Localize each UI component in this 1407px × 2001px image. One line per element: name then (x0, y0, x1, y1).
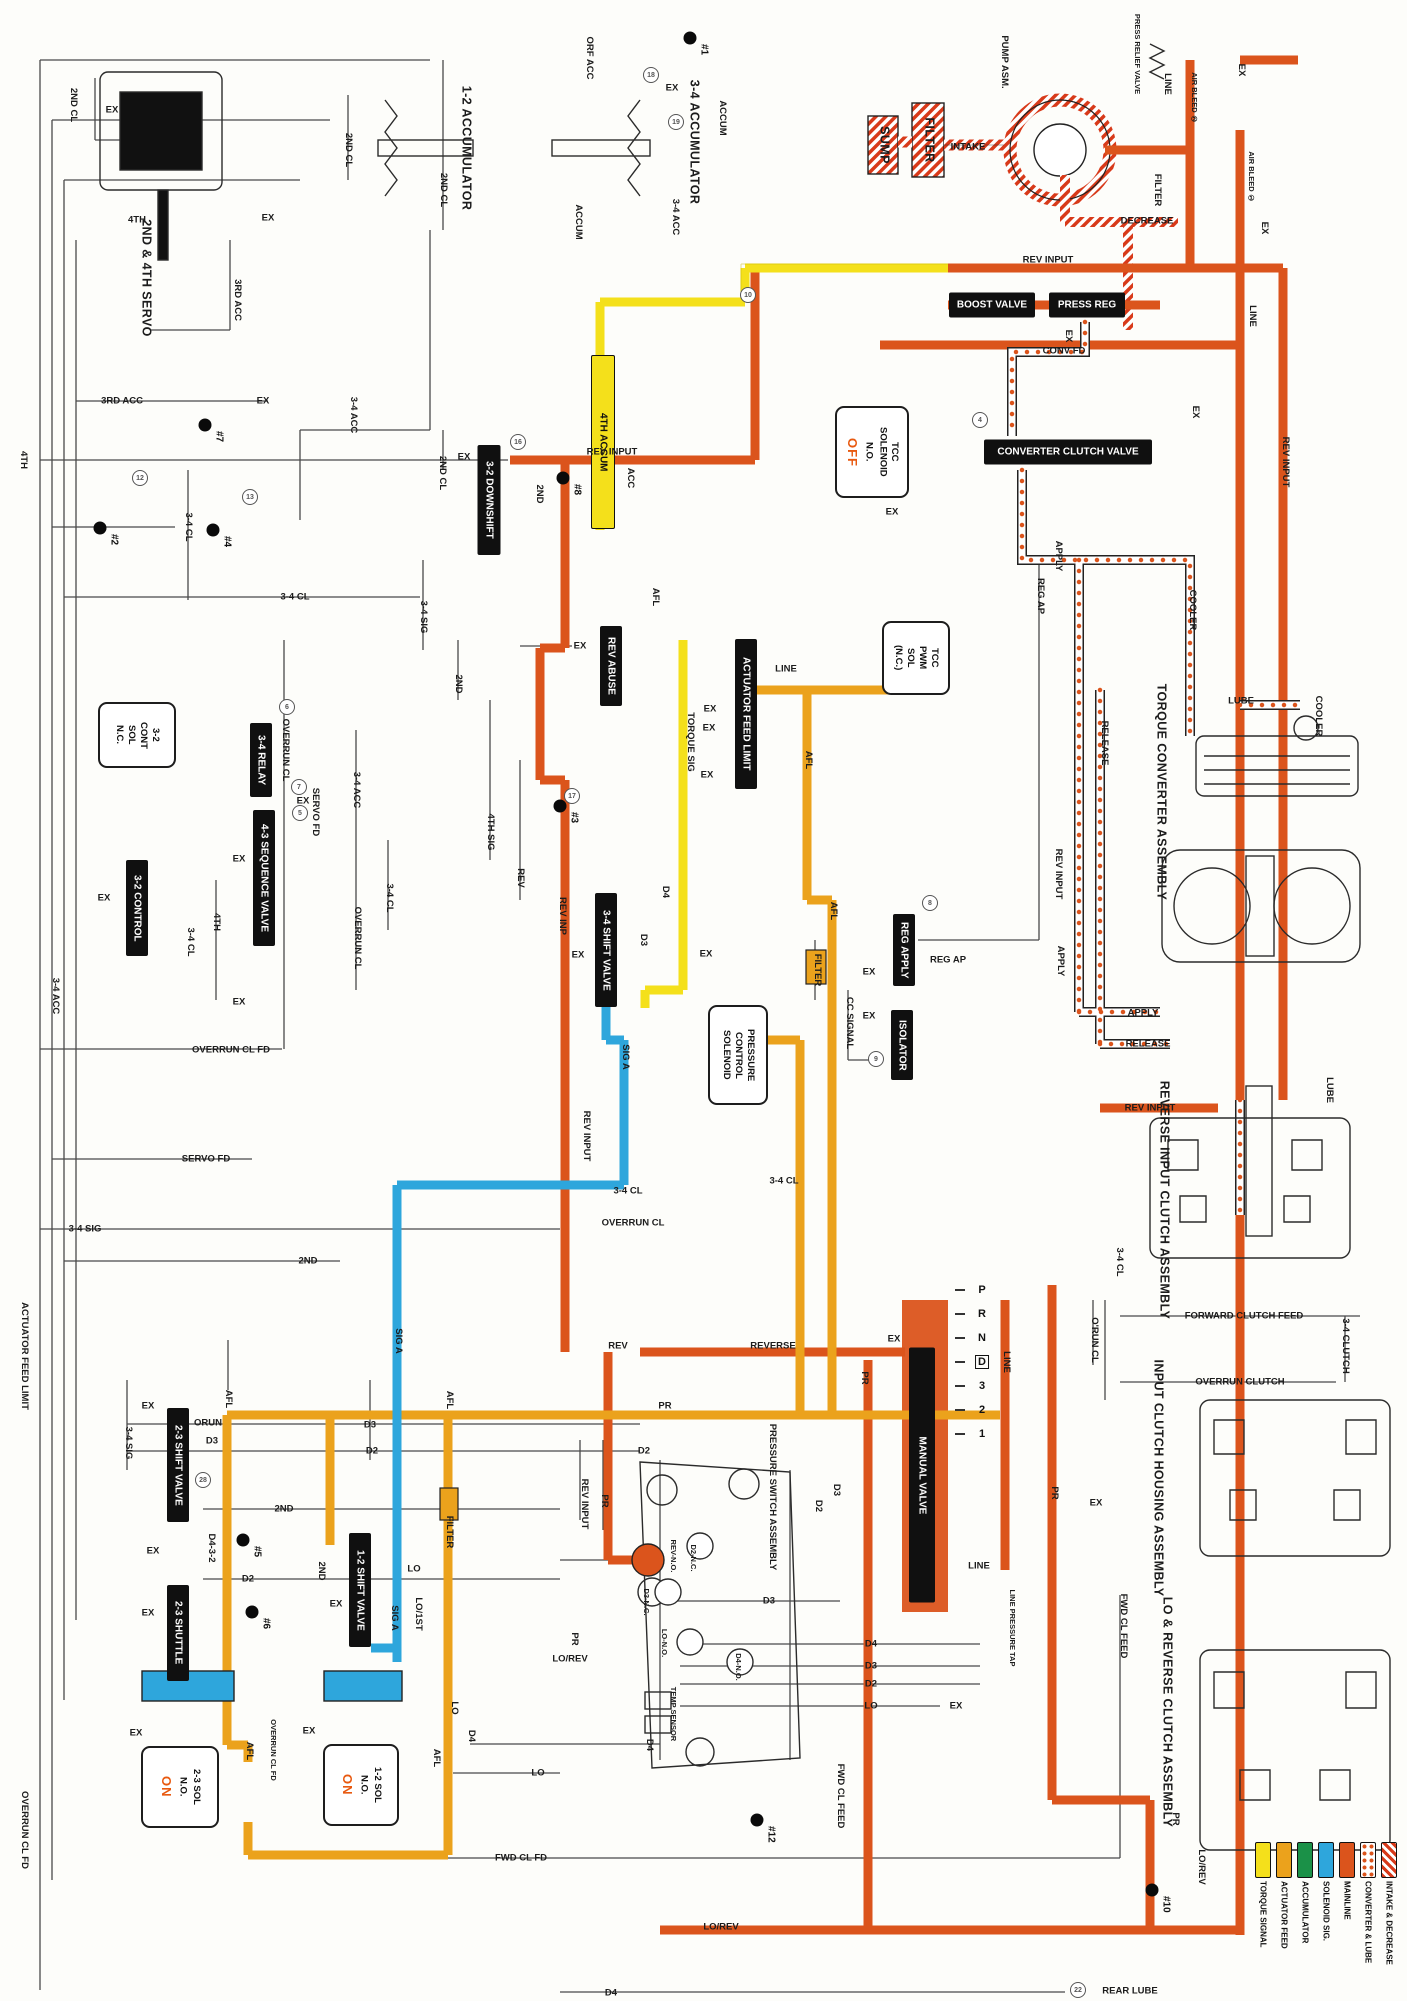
legend-label: CONVERTER & LUBE (1364, 1881, 1373, 1963)
diagram-label: REV INPUT (1280, 437, 1290, 488)
checkball-icon (684, 32, 697, 45)
diagram-label: PRESS RELIEF VALVE (1133, 14, 1141, 94)
circled-ref: 22 (1070, 1982, 1086, 1998)
diagram-label: PR (569, 1632, 579, 1645)
diagram-label: REV INPUT (587, 447, 638, 457)
valve-boost-valve: BOOST VALVE (949, 293, 1035, 318)
diagram-label: LINE (775, 664, 797, 674)
diagram-label: LINE (1247, 305, 1257, 327)
diagram-label: 3-4 SIG (123, 1427, 133, 1460)
diagram-label: REV-N.O. (669, 1540, 677, 1573)
circled-ref: 13 (242, 489, 258, 505)
diagram-label: ACC (625, 468, 635, 489)
legend-swatch-icon (1255, 1842, 1271, 1878)
diagram-label: APPLY (1055, 946, 1065, 977)
diagram-label: REV (515, 868, 525, 888)
diagram-label: REVERSE (750, 1341, 795, 1351)
gear-tick (955, 1313, 965, 1315)
diagram-label: 3-4 SIG (418, 601, 428, 634)
diagram-label: EX (330, 1599, 343, 1609)
diagram-label: D3 (865, 1661, 877, 1671)
valve-3-2-downshift: 3-2 DOWNSHIFT (478, 445, 501, 555)
solenoid-label: 3-2 CONT SOL N.C. (113, 722, 161, 749)
diagram-label: EX (1063, 330, 1073, 343)
diagram-label: COOLER (1313, 696, 1323, 737)
gear-tick (955, 1433, 965, 1435)
valve-label: 2-3 SHUTTLE (173, 1601, 184, 1664)
diagram-label: LO/REV (703, 1922, 738, 1932)
diagram-label: EX (888, 1334, 901, 1344)
circled-ref: 6 (279, 699, 295, 715)
checkball-label: #2 (109, 534, 120, 545)
diagram-label: EX (703, 723, 716, 733)
valve-label: 1-2 SHIFT VALVE (355, 1550, 366, 1631)
diagram-label: SIG A (389, 1605, 399, 1631)
diagram-label: 3RD ACC (232, 279, 242, 321)
valve-label: 4TH ACCUM (598, 413, 609, 472)
diagram-label: FWD CL FEED (835, 1764, 845, 1829)
diagram-label: INTAKE (951, 142, 986, 152)
mainline-circuit (510, 60, 1298, 1935)
diagram-label: 2ND CL (343, 133, 353, 167)
legend: TORQUE SIGNALACTUATOR FEEDACCUMULATORSOL… (1256, 1842, 1396, 1965)
diagram-label: ACTUATOR FEED LIMIT (19, 1302, 29, 1410)
diagram-label: AFL (828, 902, 838, 920)
diagram-label: SIG A (620, 1044, 630, 1070)
diagram-label: TORQUE CONVERTER ASSEMBLY (1155, 684, 1168, 901)
solenoid-state: ON (340, 1774, 355, 1796)
diagram-label: EX (106, 105, 119, 115)
checkball-icon (246, 1606, 259, 1619)
diagram-label: OVERRUN CL (602, 1218, 665, 1228)
valve-4th-accum: 4TH ACCUM (591, 355, 615, 529)
valve-4-3-sequence-valve: 4-3 SEQUENCE VALVE (253, 810, 275, 946)
checkball-label: #5 (252, 1546, 263, 1557)
valve-label: 4-3 SEQUENCE VALVE (259, 824, 270, 932)
diagram-label: 3-4 ACC (351, 772, 361, 809)
gear-tick (955, 1337, 965, 1339)
diagram-label: 3-4 ACCUMULATOR (688, 80, 701, 205)
diagram-label: AFL (803, 751, 813, 769)
legend-label: MAINLINE (1343, 1881, 1352, 1920)
valve-isolator: ISOLATOR (891, 1010, 913, 1080)
gear-position-D: D (975, 1355, 989, 1369)
checkball-icon (557, 472, 570, 485)
diagram-label: LO (449, 1701, 459, 1714)
diagram-label: AIR BLEED ① (1247, 151, 1255, 203)
valve-converter-clutch-valve: CONVERTER CLUTCH VALVE (984, 440, 1152, 465)
diagram-label: D3 (364, 1420, 376, 1430)
diagram-label: AFL (444, 1391, 454, 1409)
solenoid-5: 1-2 SOL N.O. ON (323, 1744, 399, 1826)
valve-label: 2-3 SHIFT VALVE (173, 1425, 184, 1506)
legend-label: ACTUATOR FEED (1280, 1881, 1289, 1949)
diagram-label: EX (701, 770, 714, 780)
diagram-label: LINE (1001, 1351, 1011, 1373)
diagram-label: 3-4 CL (185, 927, 195, 956)
diagram-label: 4TH SIG (485, 814, 495, 851)
diagram-label: 3-4 CL (183, 512, 193, 541)
diagram-label: D2 (366, 1446, 378, 1456)
diagram-label: EX (704, 704, 717, 714)
circled-ref: 28 (195, 1472, 211, 1488)
diagram-label: APPLY (1128, 1008, 1159, 1018)
diagram-label: AIR BLEED ② (1190, 72, 1198, 124)
gear-position-P: P (978, 1284, 985, 1296)
diagram-label: LINE (1162, 73, 1172, 95)
diagram-label: 3-4 CL (384, 883, 394, 912)
diagram-label: FILTER (444, 1516, 454, 1549)
diagram-label: PR (599, 1494, 609, 1507)
diagram-label: OVERRUN CL (352, 907, 362, 970)
checkball-label: #10 (1161, 1896, 1172, 1913)
diagram-label: EX (1259, 222, 1269, 235)
diagram-label: CC SIGNAL (844, 997, 854, 1049)
diagram-label: REV INPUT (581, 1111, 591, 1162)
diagram-label: EX (130, 1728, 143, 1738)
diagram-label: 3-4 SIG (69, 1224, 102, 1234)
diagram-label: EX (142, 1401, 155, 1411)
diagram-label: LUBE (1228, 696, 1254, 706)
diagram-label: 2ND (298, 1256, 317, 1266)
diagram-label: LO-N.O. (660, 1629, 668, 1657)
checkball-icon (237, 1534, 250, 1547)
circled-ref: 18 (643, 67, 659, 83)
solenoid-3: PRESSURE CONTROL SOLENOID (708, 1005, 768, 1105)
valve-label: MANUAL VALVE (917, 1436, 928, 1514)
valve-1-2-shift-valve: 1-2 SHIFT VALVE (349, 1533, 371, 1647)
diagram-label: REV INPUT (579, 1479, 589, 1530)
diagram-label: TORQUE SIG (685, 712, 695, 771)
checkball-icon (94, 522, 107, 535)
circled-ref: 9 (868, 1051, 884, 1067)
diagram-label: EX (147, 1546, 160, 1556)
legend-label: SOLENOID SIG. (1322, 1881, 1331, 1941)
diagram-label: OVERRUN CLUTCH (1195, 1377, 1284, 1387)
diagram-label: EX (262, 213, 275, 223)
diagram-label: EX (233, 997, 246, 1007)
diagram-label: 2ND (534, 484, 544, 503)
valve-label: 3-4 RELAY (256, 735, 267, 785)
legend-item: INTAKE & DECREASE (1382, 1842, 1396, 1965)
gear-tick (955, 1409, 965, 1411)
circled-ref: 8 (922, 895, 938, 911)
diagram-label: D3 (763, 1596, 775, 1606)
diagram-label: D2 (813, 1500, 823, 1512)
diagram-label: PR (859, 1371, 869, 1384)
diagram-label: 4TH (211, 913, 221, 931)
gear-tick (955, 1361, 965, 1363)
legend-swatch-icon (1276, 1842, 1292, 1878)
diagram-label: D3 (206, 1436, 218, 1446)
diagram-label: D3 (638, 934, 648, 946)
checkball-label: #7 (214, 431, 225, 442)
legend-item: SOLENOID SIG. (1319, 1842, 1333, 1965)
diagram-label: LO/REV (1196, 1849, 1206, 1884)
diagram-label: EX (1090, 1498, 1103, 1508)
checkball-icon (199, 419, 212, 432)
legend-item: TORQUE SIGNAL (1256, 1842, 1270, 1965)
diagram-label: PRESSURE SWITCH ASSEMBLY (767, 1424, 777, 1571)
diagram-label: 2ND (453, 674, 463, 693)
legend-swatch-icon (1297, 1842, 1313, 1878)
diagram-label: ORUN (194, 1418, 222, 1428)
diagram-label: SIG A (393, 1328, 403, 1354)
valve-manual-valve: MANUAL VALVE (909, 1348, 935, 1603)
diagram-label: D2 (242, 1574, 254, 1584)
gear-position-2: 2 (979, 1404, 985, 1416)
diagram-label: REV (608, 1341, 628, 1351)
checkball-icon (1146, 1884, 1159, 1897)
diagram-label: D4 (644, 1739, 654, 1751)
legend-swatch-icon (1381, 1842, 1397, 1878)
diagram-label: 3-4 ACC (670, 199, 680, 236)
diagram-label: D2 (865, 1679, 877, 1689)
valve-label: REV ABUSE (606, 637, 617, 695)
diagram-label: REV INPUT (1023, 255, 1074, 265)
diagram-label: APPLY (1053, 541, 1063, 572)
diagram-label: ORF ACC (584, 37, 594, 80)
diagram-label: 3-4 CL (613, 1186, 642, 1196)
valve-2-3-shift-valve: 2-3 SHIFT VALVE (167, 1408, 189, 1522)
legend-item: ACCUMULATOR (1298, 1842, 1312, 1965)
diagram-label: D3-N.C. (642, 1588, 650, 1615)
diagram-label: 2ND (316, 1561, 326, 1580)
valve-press-reg: PRESS REG (1049, 293, 1125, 318)
solenoid-label: TCC PWM SOL (N.C.) (892, 645, 940, 670)
diagram-label: INPUT CLUTCH HOUSING ASSEMBLY (1152, 1359, 1165, 1596)
diagram-label: LINE (968, 1561, 990, 1571)
diagram-label: D3 (831, 1484, 841, 1496)
valve-label: CONVERTER CLUTCH VALVE (997, 447, 1138, 458)
diagram-label: FWD CL FEED (1118, 1594, 1128, 1659)
legend-label: INTAKE & DECREASE (1385, 1881, 1394, 1965)
diagram-label: D4 (660, 886, 670, 898)
diagram-label: LO (864, 1701, 877, 1711)
diagram-label: OVERRUN CL FD (19, 1791, 29, 1869)
gear-position-1: 1 (979, 1428, 985, 1440)
circled-ref: 7 (291, 779, 307, 795)
diagram-label: EX (257, 396, 270, 406)
legend-label: ACCUMULATOR (1301, 1881, 1310, 1943)
diagram-label: SERVO FD (182, 1154, 230, 1164)
valve-label: ACTUATOR FEED LIMIT (741, 657, 752, 771)
valve-3-2-control: 3-2 CONTROL (126, 860, 148, 956)
diagram-label: 2ND CL (68, 88, 78, 122)
diagram-label: AFL (244, 1742, 254, 1760)
diagram-label: REVERSE INPUT CLUTCH ASSEMBLY (1158, 1081, 1171, 1319)
valve-actuator-feed-limit: ACTUATOR FEED LIMIT (735, 639, 757, 789)
gear-tick (955, 1289, 965, 1291)
diagram-label: EX (700, 949, 713, 959)
diagram-label: LO & REVERSE CLUTCH ASSEMBLY (1161, 1597, 1174, 1827)
diagram-label: FWD CL FD (495, 1853, 547, 1863)
gear-position-R: R (978, 1308, 986, 1320)
checkball-label: #12 (766, 1826, 777, 1843)
diagram-label: AFL (650, 588, 660, 606)
diagram-label: EX (458, 452, 471, 462)
checkball-label: #8 (572, 484, 583, 495)
solenoid-4: 2-3 SOL N.O. ON (141, 1746, 219, 1828)
valve-label: 3-2 CONTROL (132, 875, 143, 942)
gear-position-3: 3 (979, 1380, 985, 1392)
valve-label: BOOST VALVE (957, 300, 1027, 311)
circuit-linework (0, 0, 1407, 2001)
diagram-label: FILTER (1152, 174, 1162, 207)
diagram-label: 2ND CL (438, 173, 448, 207)
checkball-label: #6 (261, 1618, 272, 1629)
diagram-label: 3-4 CLUTCH (1340, 1318, 1350, 1373)
diagram-label: EX (233, 854, 246, 864)
diagram-label: EX (572, 950, 585, 960)
legend-item: MAINLINE (1340, 1842, 1354, 1965)
diagram-label: 3-4 CL (280, 592, 309, 602)
diagram-label: LUBE (1324, 1077, 1334, 1103)
diagram-label: D4 (605, 1988, 617, 1998)
diagram-label: LO (407, 1564, 420, 1574)
diagram-label: CONV FD (1043, 346, 1086, 356)
valve-2-3-shuttle: 2-3 SHUTTLE (167, 1585, 189, 1681)
diagram-label: D2 (638, 1446, 650, 1456)
diagram-label: PR (658, 1401, 671, 1411)
diagram-label: REV INP (557, 897, 567, 935)
diagram-label: EX (863, 967, 876, 977)
valve-label: PRESS REG (1058, 300, 1116, 311)
diagram-label: FILTER (812, 954, 822, 987)
diagram-label: DECREASE (1121, 216, 1174, 226)
diagram-label: 3-4 CL (1114, 1247, 1124, 1276)
diagram-label: EX (863, 1011, 876, 1021)
circled-ref: 17 (564, 788, 580, 804)
diagram-label: FILTER (923, 117, 936, 162)
diagram-label: EX (574, 641, 587, 651)
diagram-label: ACCUM (573, 204, 583, 239)
solenoid-label: 2-3 SOL N.O. ON (158, 1769, 202, 1805)
diagram-label: EX (666, 83, 679, 93)
checkball-icon (554, 800, 567, 813)
diagram-label: PR (1049, 1486, 1059, 1499)
diagram-label: OVERRUN CL (280, 719, 290, 782)
diagram-label: REV INPUT (1053, 849, 1063, 900)
diagram-label: EX (98, 893, 111, 903)
diagram-label: REAR LUBE (1102, 1986, 1157, 1996)
valve-label: 3-4 SHIFT VALVE (601, 910, 612, 991)
diagram-label: D4 (466, 1730, 476, 1742)
diagram-label: 3RD ACC (101, 396, 143, 406)
legend-item: CONVERTER & LUBE (1361, 1842, 1375, 1965)
valve-3-4-relay: 3-4 RELAY (250, 723, 272, 797)
legend-item: ACTUATOR FEED (1277, 1842, 1291, 1965)
diagram-label: EX (303, 1726, 316, 1736)
rev-pressure-switch (632, 1544, 664, 1576)
diagram-label: SERVO FD (310, 788, 320, 836)
circled-ref: 4 (972, 412, 988, 428)
diagram-label: D4 (865, 1639, 877, 1649)
diagram-label: OVERRUN CL FD (192, 1045, 270, 1055)
valve-label: 3-2 DOWNSHIFT (484, 461, 495, 539)
diagram-label: LO (531, 1768, 544, 1778)
diagram-label: REG AP (1035, 578, 1045, 614)
circled-ref: 10 (740, 287, 756, 303)
solenoid-state: OFF (845, 438, 860, 467)
valve-label: REG APPLY (899, 922, 910, 979)
diagram-label: 3-4 ACC (50, 978, 60, 1015)
gear-position-N: N (978, 1332, 986, 1344)
diagram-label: 4TH (18, 451, 28, 469)
checkball-label: #3 (569, 812, 580, 823)
diagram-label: EX (886, 507, 899, 517)
diagram-label: D4-3-2 (206, 1533, 216, 1562)
diagram-label: EX (1190, 406, 1200, 419)
gear-tick (955, 1385, 965, 1387)
valve-reg-apply: REG APPLY (893, 914, 915, 986)
legend-swatch-icon (1360, 1842, 1376, 1878)
diagram-label: LO/REV (552, 1654, 587, 1664)
diagram-label: EX (142, 1608, 155, 1618)
diagram-label: 3-4 CL (769, 1176, 798, 1186)
diagram-label: OVERRUN CL FD (269, 1719, 277, 1781)
diagram-label: 1-2 ACCUMULATOR (460, 86, 473, 211)
diagram-label: AFL (223, 1390, 233, 1408)
checkball-label: #1 (699, 44, 710, 55)
diagram-label: LO/1ST (413, 1597, 423, 1630)
diagram-label: FORWARD CLUTCH FEED (1185, 1311, 1304, 1321)
circled-ref: 5 (292, 805, 308, 821)
valve-label: ISOLATOR (897, 1020, 908, 1071)
diagram-label: D2-N.C. (689, 1544, 697, 1571)
diagram-label: RELEASE (1099, 721, 1109, 766)
diagram-label: TEMP SENSOR (669, 1687, 677, 1741)
diagram-label: 2ND CL (437, 456, 447, 490)
valve-3-4-shift-valve: 3-4 SHIFT VALVE (595, 893, 617, 1007)
diagram-label: RELEASE (1126, 1039, 1171, 1049)
diagram-label: ACCUM (717, 100, 727, 135)
solenoid-1: TCC SOLENOID N.O. OFF (835, 406, 909, 498)
valve-rev-abuse: REV ABUSE (600, 626, 622, 706)
solenoid-state: ON (159, 1776, 174, 1798)
sol-12-cap (324, 1671, 402, 1701)
solenoid-label: TCC SOLENOID N.O. OFF (844, 427, 900, 477)
legend-swatch-icon (1318, 1842, 1334, 1878)
diagram-label: PUMP ASM. (999, 35, 1009, 88)
circled-ref: 16 (510, 434, 526, 450)
diagram-label: REG AP (930, 955, 966, 965)
checkball-icon (207, 524, 220, 537)
diagram-label: 3-4 ACC (348, 397, 358, 434)
legend-swatch-icon (1339, 1842, 1355, 1878)
diagram-label: 2ND (274, 1504, 293, 1514)
diagram-label: AFL (431, 1749, 441, 1767)
diagram-label: EX (1236, 64, 1246, 77)
hydraulic-circuit-diagram: TORQUE SIGNALACTUATOR FEEDACCUMULATORSOL… (0, 0, 1407, 2001)
solenoid-label: 1-2 SOL N.O. ON (339, 1767, 383, 1803)
solenoid-label: PRESSURE CONTROL SOLENOID (720, 1029, 756, 1081)
checkball-label: #4 (222, 536, 233, 547)
diagram-label: SUMP (878, 126, 891, 164)
diagram-label: COOLER (1187, 590, 1197, 631)
diagram-label: O'RUN CL (1089, 1317, 1099, 1363)
legend-label: TORQUE SIGNAL (1259, 1881, 1268, 1948)
solenoid-0: 3-2 CONT SOL N.C. (98, 702, 176, 768)
diagram-label: 2ND & 4TH SERVO (140, 219, 153, 337)
diagram-label: D4-N.O. (734, 1653, 742, 1681)
circled-ref: 12 (132, 470, 148, 486)
diagram-label: EX (950, 1701, 963, 1711)
circled-ref: 19 (668, 114, 684, 130)
checkball-icon (751, 1814, 764, 1827)
solenoid-2: TCC PWM SOL (N.C.) (882, 621, 950, 695)
diagram-label: LINE PRESSURE TAP (1008, 1590, 1016, 1667)
